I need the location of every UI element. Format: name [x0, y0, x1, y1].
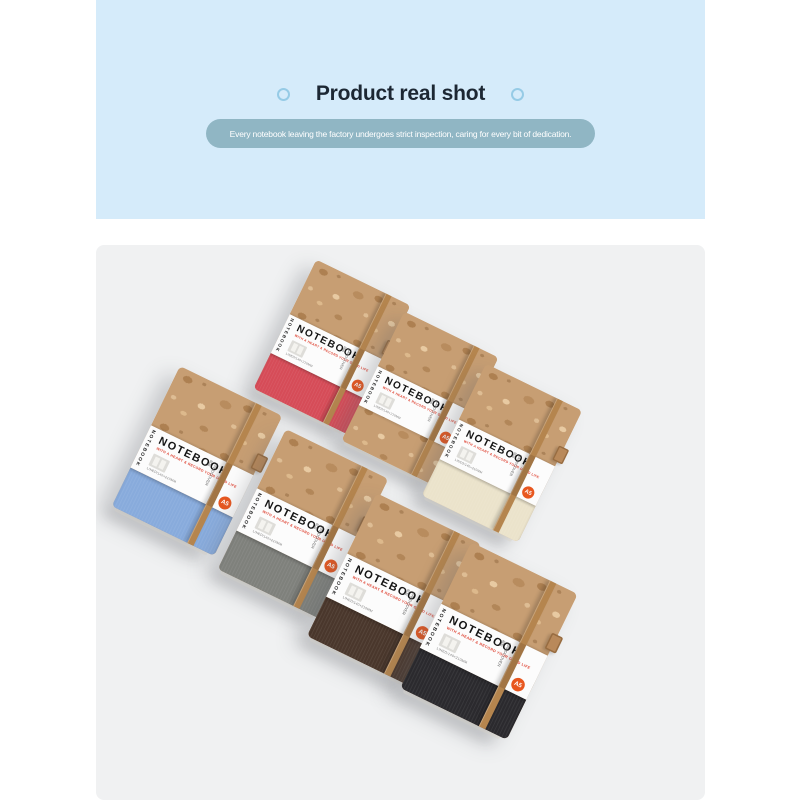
circle-decor-icon — [277, 88, 290, 101]
section-title-row: Product real shot — [277, 82, 524, 106]
circle-decor-icon — [511, 88, 524, 101]
caption-text: Every notebook leaving the factory under… — [230, 129, 572, 139]
size-badge: A5 — [520, 484, 536, 500]
caption-banner: Every notebook leaving the factory under… — [206, 119, 596, 148]
section-title: Product real shot — [316, 82, 485, 106]
size-badge: A5 — [350, 378, 366, 394]
size-badge: A5 — [509, 676, 527, 694]
header-panel: Product real shot Every notebook leaving… — [96, 0, 705, 219]
size-badge: A5 — [216, 494, 233, 511]
product-photo-panel: NOTEBOOK NOTEBOOK WITH A HEART & RECORD … — [96, 245, 705, 800]
